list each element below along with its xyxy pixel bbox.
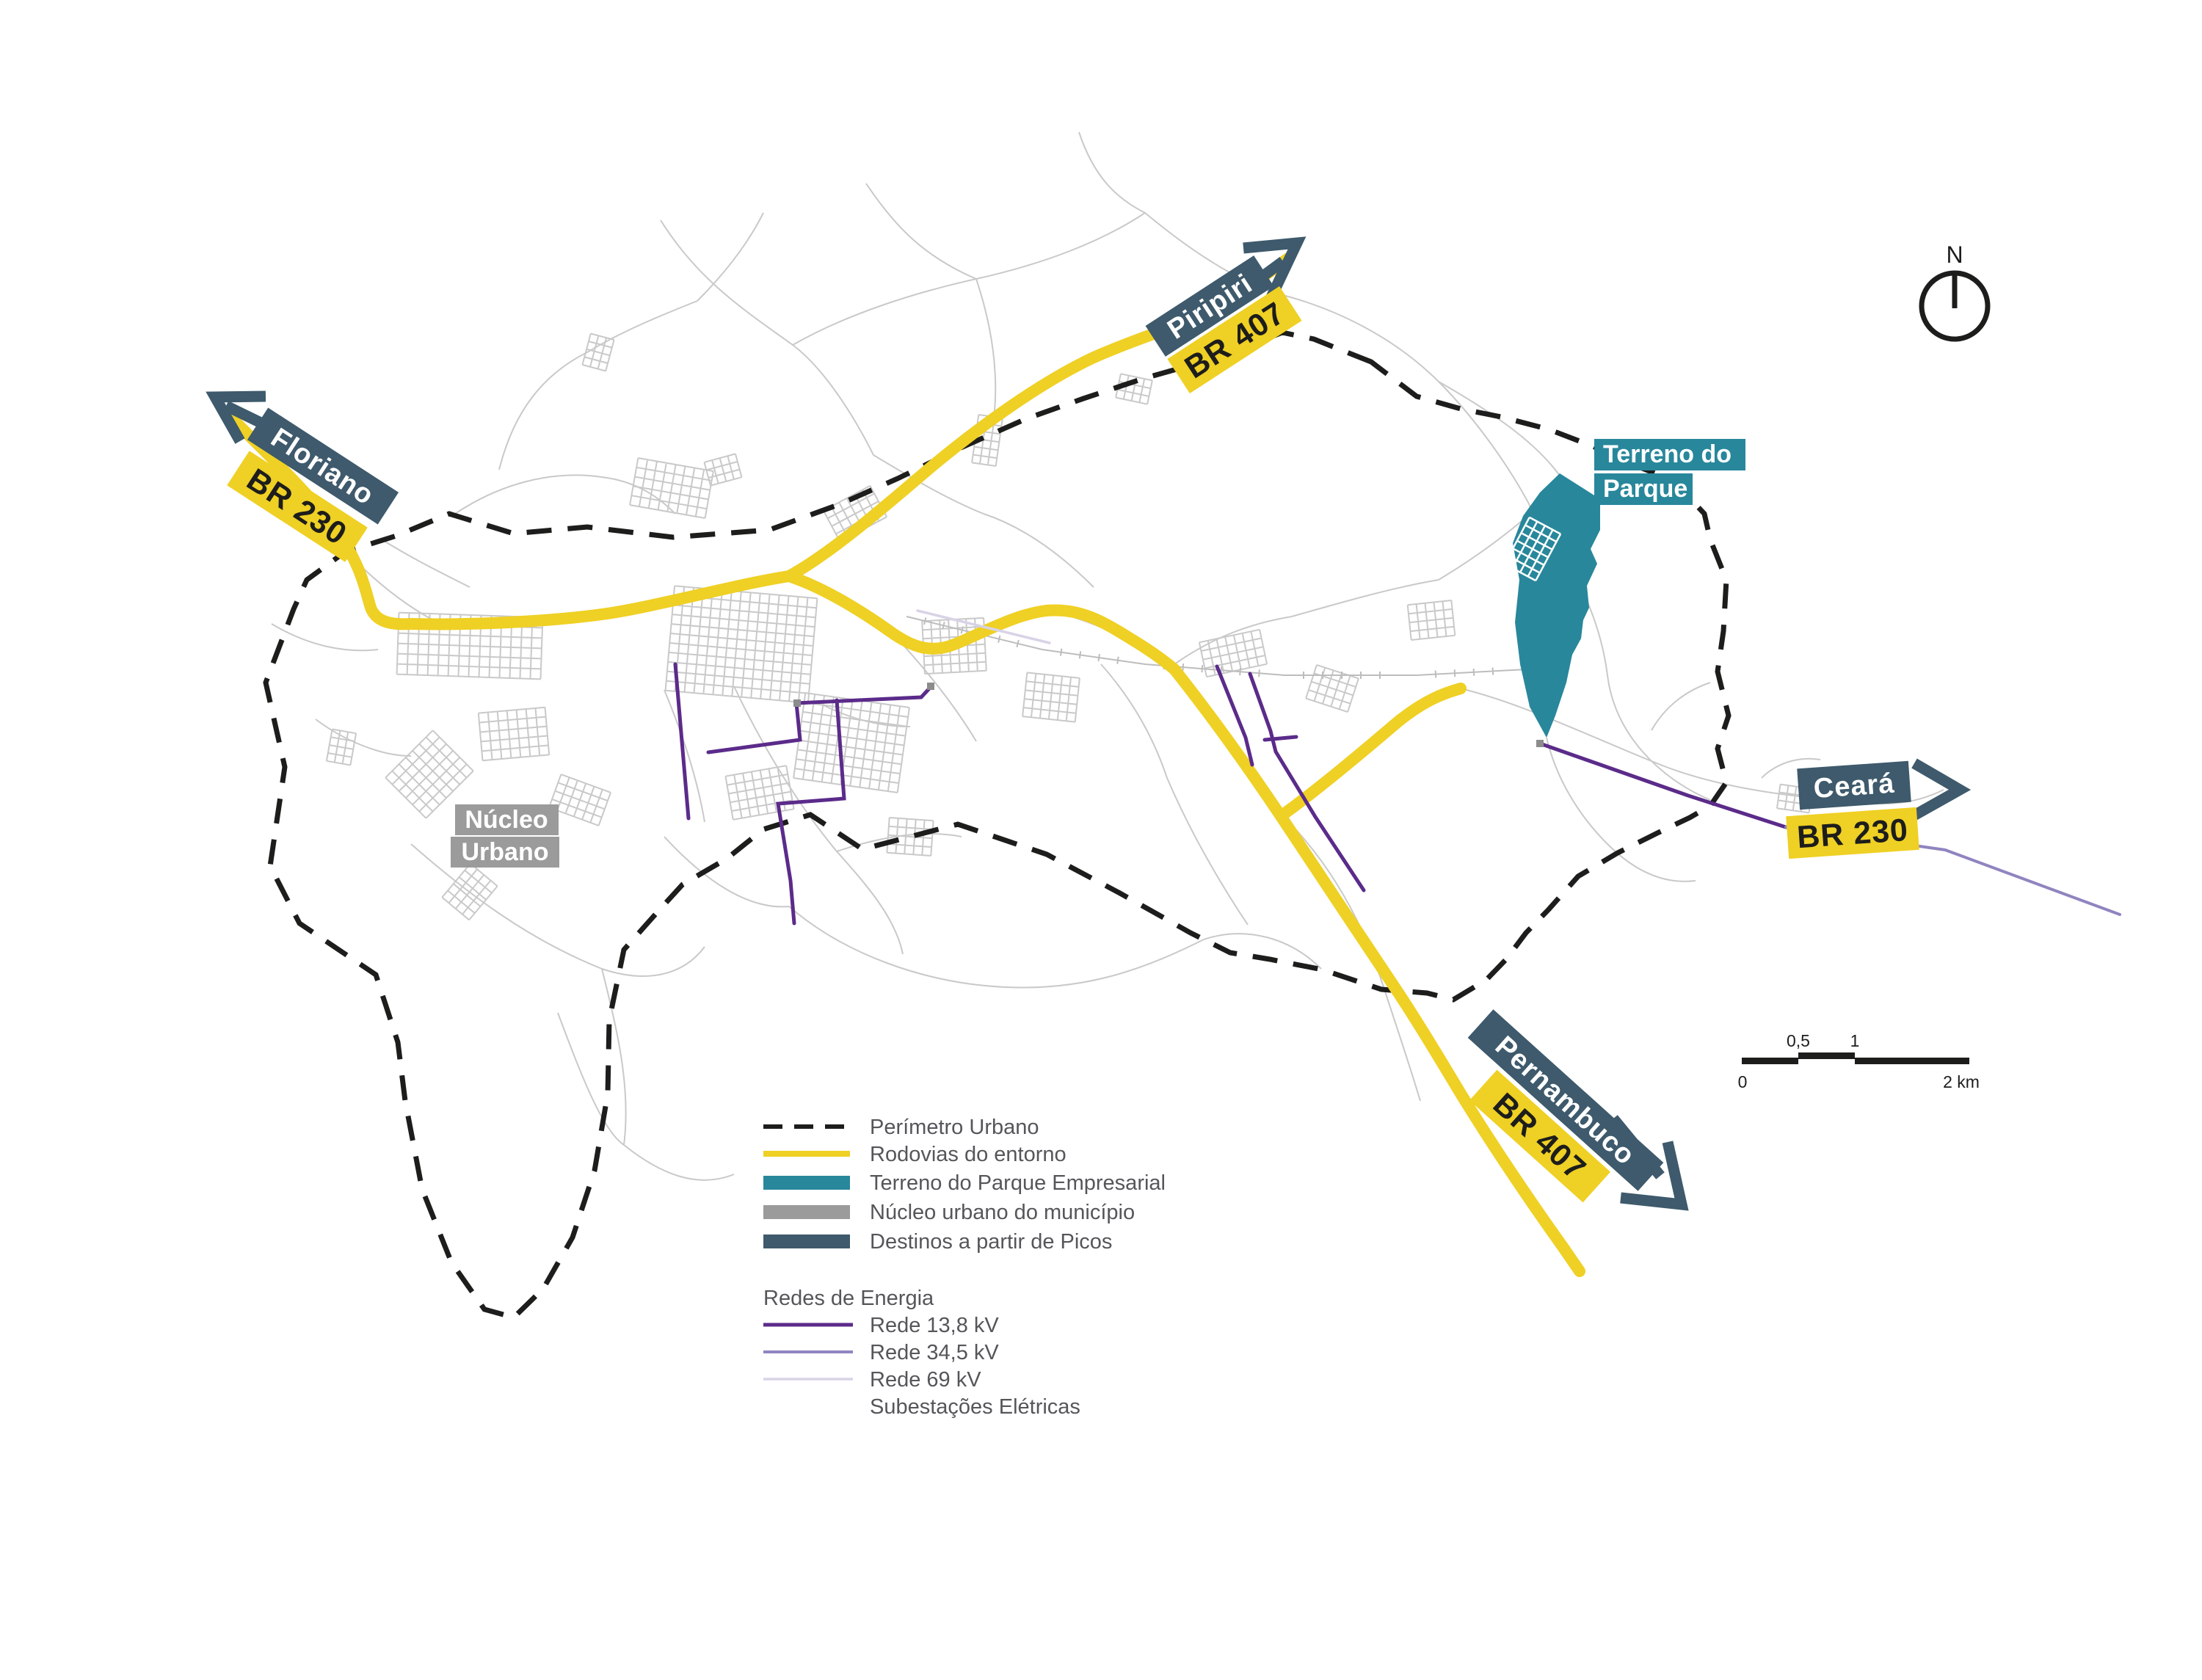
rural-road xyxy=(789,906,1204,988)
rural-road xyxy=(697,213,763,301)
substation-icon xyxy=(927,683,934,690)
rural-road xyxy=(664,837,789,906)
street-grid-cluster xyxy=(705,454,742,485)
rural-road xyxy=(1101,664,1167,778)
terreno-line1: Terreno do xyxy=(1603,440,1732,468)
rural-road xyxy=(866,183,976,279)
street-grid-cluster xyxy=(1306,665,1359,712)
scale-label-1: 1 xyxy=(1850,1031,1860,1050)
rural-road xyxy=(984,514,1094,587)
scale-label-0: 0 xyxy=(1738,1072,1748,1091)
rural-road xyxy=(1547,738,1696,881)
legend-swatch-nucleo xyxy=(763,1205,850,1219)
compass-n-label: N xyxy=(1946,241,1963,268)
legend-item-69kv: Rede 69 kV xyxy=(870,1368,981,1392)
rural-road xyxy=(558,1013,624,1145)
legend-item-terreno: Terreno do Parque Empresarial xyxy=(870,1171,1166,1195)
map-svg: Floriano BR 230 Piripiri BR 407 Ceará BR… xyxy=(0,0,2202,1680)
nucleo-line1: Núcleo xyxy=(465,806,548,834)
legend-swatch-terreno xyxy=(763,1176,850,1190)
rural-road xyxy=(499,352,587,470)
legend-item-destinos: Destinos a partir de Picos xyxy=(870,1230,1112,1254)
street-grid-cluster xyxy=(479,708,549,761)
street-grid-cluster xyxy=(1022,672,1080,721)
rural-road xyxy=(1174,617,1292,664)
rural-road xyxy=(793,213,1145,345)
rural-road xyxy=(624,1145,734,1180)
rural-road xyxy=(272,624,378,650)
rural-road xyxy=(1079,132,1145,213)
park-terrain-polygon xyxy=(1513,473,1600,738)
street-network xyxy=(272,132,1944,1180)
substation-markers xyxy=(793,683,1544,747)
rural-road xyxy=(1439,382,1560,476)
scale-label-2km: 2 km xyxy=(1943,1072,1980,1091)
rural-road xyxy=(1651,683,1710,730)
label-floriano: Floriano BR 230 xyxy=(227,407,399,561)
street-grid-cluster xyxy=(793,693,909,793)
arrow-ceara xyxy=(1913,763,1960,816)
scale-segment-1 xyxy=(1742,1058,1798,1064)
destination-arrows xyxy=(215,243,1960,1204)
rural-road xyxy=(976,279,995,411)
legend-item-perimetro: Perímetro Urbano xyxy=(870,1116,1039,1139)
scale-bar: 0,5 1 0 2 km xyxy=(1738,1031,1980,1091)
label-terreno-parque: Terreno do Parque xyxy=(1594,439,1745,505)
rural-road xyxy=(661,220,873,455)
legend-item-rodovias: Rodovias do entorno xyxy=(870,1143,1067,1166)
street-grid-cluster xyxy=(327,730,356,766)
legend-item-345kv: Rede 34,5 kV xyxy=(870,1341,999,1364)
scale-segment-2 xyxy=(1798,1052,1855,1059)
legend-item-138kv: Rede 13,8 kV xyxy=(870,1314,999,1337)
street-grid-cluster xyxy=(630,458,713,518)
scale-label-05: 0,5 xyxy=(1787,1031,1810,1050)
substation-icon xyxy=(793,699,801,707)
highway-br407-south xyxy=(789,576,1580,1271)
street-grid-cluster xyxy=(725,766,793,820)
legend: Perímetro Urbano Rodovias do entorno Ter… xyxy=(763,1116,1166,1419)
rural-road xyxy=(1167,778,1248,925)
street-grid-cluster xyxy=(1116,374,1152,404)
map-canvas: Floriano BR 230 Piripiri BR 407 Ceará BR… xyxy=(0,0,2202,1680)
street-grid-cluster xyxy=(666,586,818,702)
street-grid-cluster xyxy=(1408,600,1456,640)
substation-icon xyxy=(1536,740,1544,747)
label-nucleo-urbano: Núcleo Urbano xyxy=(451,804,559,868)
label-ceara: Ceará BR 230 xyxy=(1786,761,1919,859)
terreno-line2: Parque xyxy=(1603,475,1687,503)
label-pernambuco: Pernambuco BR 407 xyxy=(1468,1009,1664,1202)
rural-road xyxy=(382,539,470,587)
north-compass: N xyxy=(1922,241,1988,339)
rural-road xyxy=(1277,811,1420,1101)
legend-energy-header: Redes de Energia xyxy=(763,1287,934,1310)
legend-item-nucleo: Núcleo urbano do município xyxy=(870,1201,1135,1224)
rural-road xyxy=(1277,294,1534,514)
rural-road xyxy=(455,475,675,514)
rural-road xyxy=(316,719,411,756)
legend-item-subestacoes: Subestações Elétricas xyxy=(870,1395,1080,1419)
ceara-city-label: Ceará xyxy=(1812,768,1895,804)
nucleo-line2: Urbano xyxy=(462,838,549,866)
legend-swatch-destinos xyxy=(763,1234,850,1248)
highway-br230-east-spur xyxy=(1281,688,1461,816)
scale-segment-3 xyxy=(1855,1058,1969,1064)
